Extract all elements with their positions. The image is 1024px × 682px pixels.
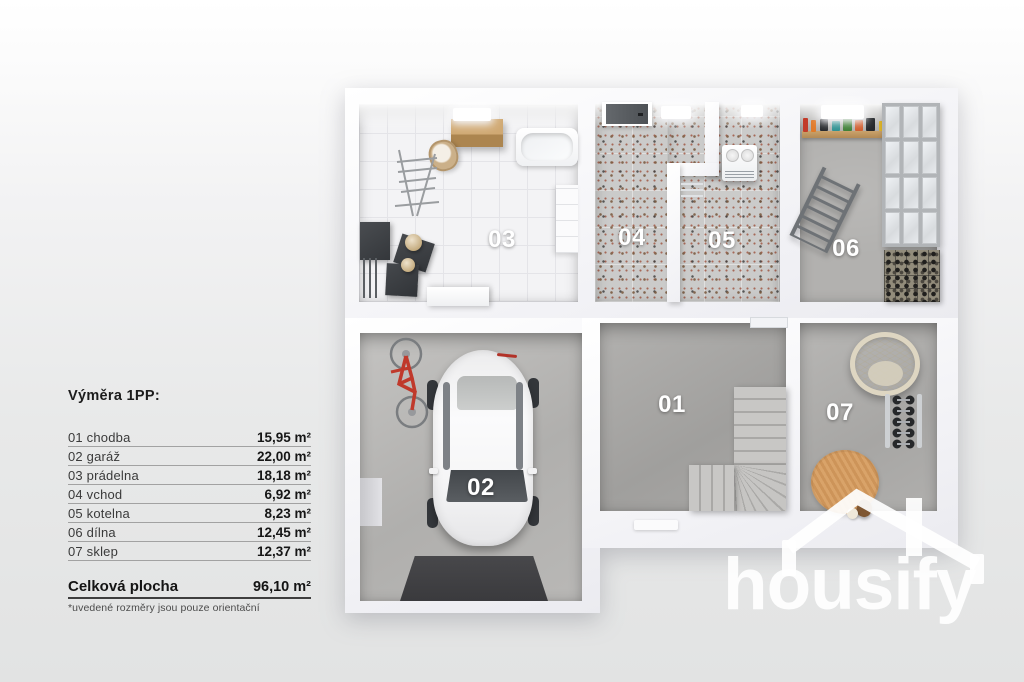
dark-wall-panel [360, 222, 390, 260]
legend-room-area: 18,18 m² [257, 468, 311, 483]
wooden-shelf [451, 119, 503, 147]
ceiling-light-icon [741, 105, 763, 117]
boiler-knob [726, 149, 739, 162]
hanging-egg-chair [850, 332, 920, 396]
legend-row-03: 03 prádelna 18,18 m² [68, 466, 311, 485]
ceiling-light-icon [821, 105, 864, 119]
legend-room-name: 05 kotelna [68, 506, 130, 521]
room-label-01: 01 [658, 391, 686, 419]
garage-door-mat [400, 556, 548, 601]
legend-room-name: 02 garáž [68, 449, 120, 464]
legend-room-area: 12,45 m² [257, 525, 311, 540]
towel-rail [681, 180, 703, 197]
legend-room-name: 06 dílna [68, 525, 116, 540]
car-roof-glass [457, 376, 517, 410]
legend-room-name: 03 prádelna [68, 468, 139, 483]
legend-room-area: 6,92 m² [264, 487, 311, 502]
storage-basket [401, 258, 415, 272]
legend-room-area: 22,00 m² [257, 449, 311, 464]
boiler-knob [741, 149, 754, 162]
door-leaf [606, 104, 648, 124]
legend-row-05: 05 kotelna 8,23 m² [68, 504, 311, 523]
storage-basket [405, 234, 422, 251]
room-label-05: 05 [708, 227, 736, 255]
legend-row-04: 04 vchod 6,92 m² [68, 485, 311, 504]
legend-total-row: Celková plocha 96,10 m² [68, 577, 311, 599]
housify-logo: housify [723, 486, 1024, 661]
tool-icon [832, 121, 840, 131]
storage-bin-shelving [882, 103, 940, 247]
tool-icon [820, 119, 828, 131]
car-side-window [443, 382, 450, 470]
ceiling-light-icon [453, 108, 491, 121]
car-taillight [497, 353, 517, 358]
drying-rack [391, 146, 441, 220]
ceiling-light-icon [661, 106, 691, 119]
room-label-06: 06 [832, 235, 860, 263]
wall-niche [360, 478, 382, 526]
legend-total-area: 96,10 m² [253, 579, 311, 595]
room-label-03: 03 [488, 226, 516, 254]
car-mirror [429, 468, 438, 474]
white-shelf [556, 185, 578, 253]
car-body [433, 350, 533, 546]
tool-icon [843, 118, 852, 131]
legend-row-07: 07 sklep 12,37 m² [68, 542, 311, 561]
car [429, 348, 537, 548]
room-05-kotelna-floor [667, 104, 780, 302]
legend-panel: Výměra 1PP: 01 chodba 15,95 m² 02 garáž … [68, 388, 311, 614]
room-label-07: 07 [826, 399, 854, 427]
page-canvas: Výměra 1PP: 01 chodba 15,95 m² 02 garáž … [0, 0, 1024, 682]
legend-room-name: 04 vchod [68, 487, 122, 502]
dumbbell-rack [877, 392, 931, 450]
legend-room-area: 15,95 m² [257, 430, 311, 445]
entrance-door [602, 102, 652, 126]
boiler-unit [722, 145, 757, 181]
doormat [634, 520, 678, 530]
legend-room-name: 01 chodba [68, 430, 131, 445]
legend-room-area: 12,37 m² [257, 544, 311, 559]
tool-icon [866, 118, 875, 131]
legend-room-list: 01 chodba 15,95 m² 02 garáž 22,00 m² 03 … [68, 428, 311, 561]
car-side-window [516, 382, 523, 470]
window [750, 317, 788, 328]
legend-total-label: Celková plocha [68, 578, 178, 595]
bathtub [516, 128, 578, 166]
railing [363, 258, 379, 298]
tool-icon [811, 120, 816, 132]
staircase-straight-flight [734, 387, 786, 465]
housify-logo-text: housify [723, 548, 976, 621]
tool-icon [803, 118, 808, 132]
legend-room-area: 8,23 m² [264, 506, 311, 521]
parts-organizer-shelf [884, 250, 940, 302]
white-cabinet [427, 287, 489, 306]
room-label-02: 02 [467, 474, 495, 502]
legend-room-name: 07 sklep [68, 544, 118, 559]
boiler-grille [725, 170, 754, 178]
wall-04-05-lower [667, 163, 680, 302]
legend-footnote: *uvedené rozměry jsou pouze orientační [68, 602, 311, 614]
legend-row-01: 01 chodba 15,95 m² [68, 428, 311, 447]
room-label-04: 04 [618, 224, 646, 252]
legend-row-06: 06 dílna 12,45 m² [68, 523, 311, 542]
legend-title: Výměra 1PP: [68, 388, 311, 404]
tool-icon [855, 120, 863, 131]
car-mirror [528, 468, 537, 474]
legend-row-02: 02 garáž 22,00 m² [68, 447, 311, 466]
